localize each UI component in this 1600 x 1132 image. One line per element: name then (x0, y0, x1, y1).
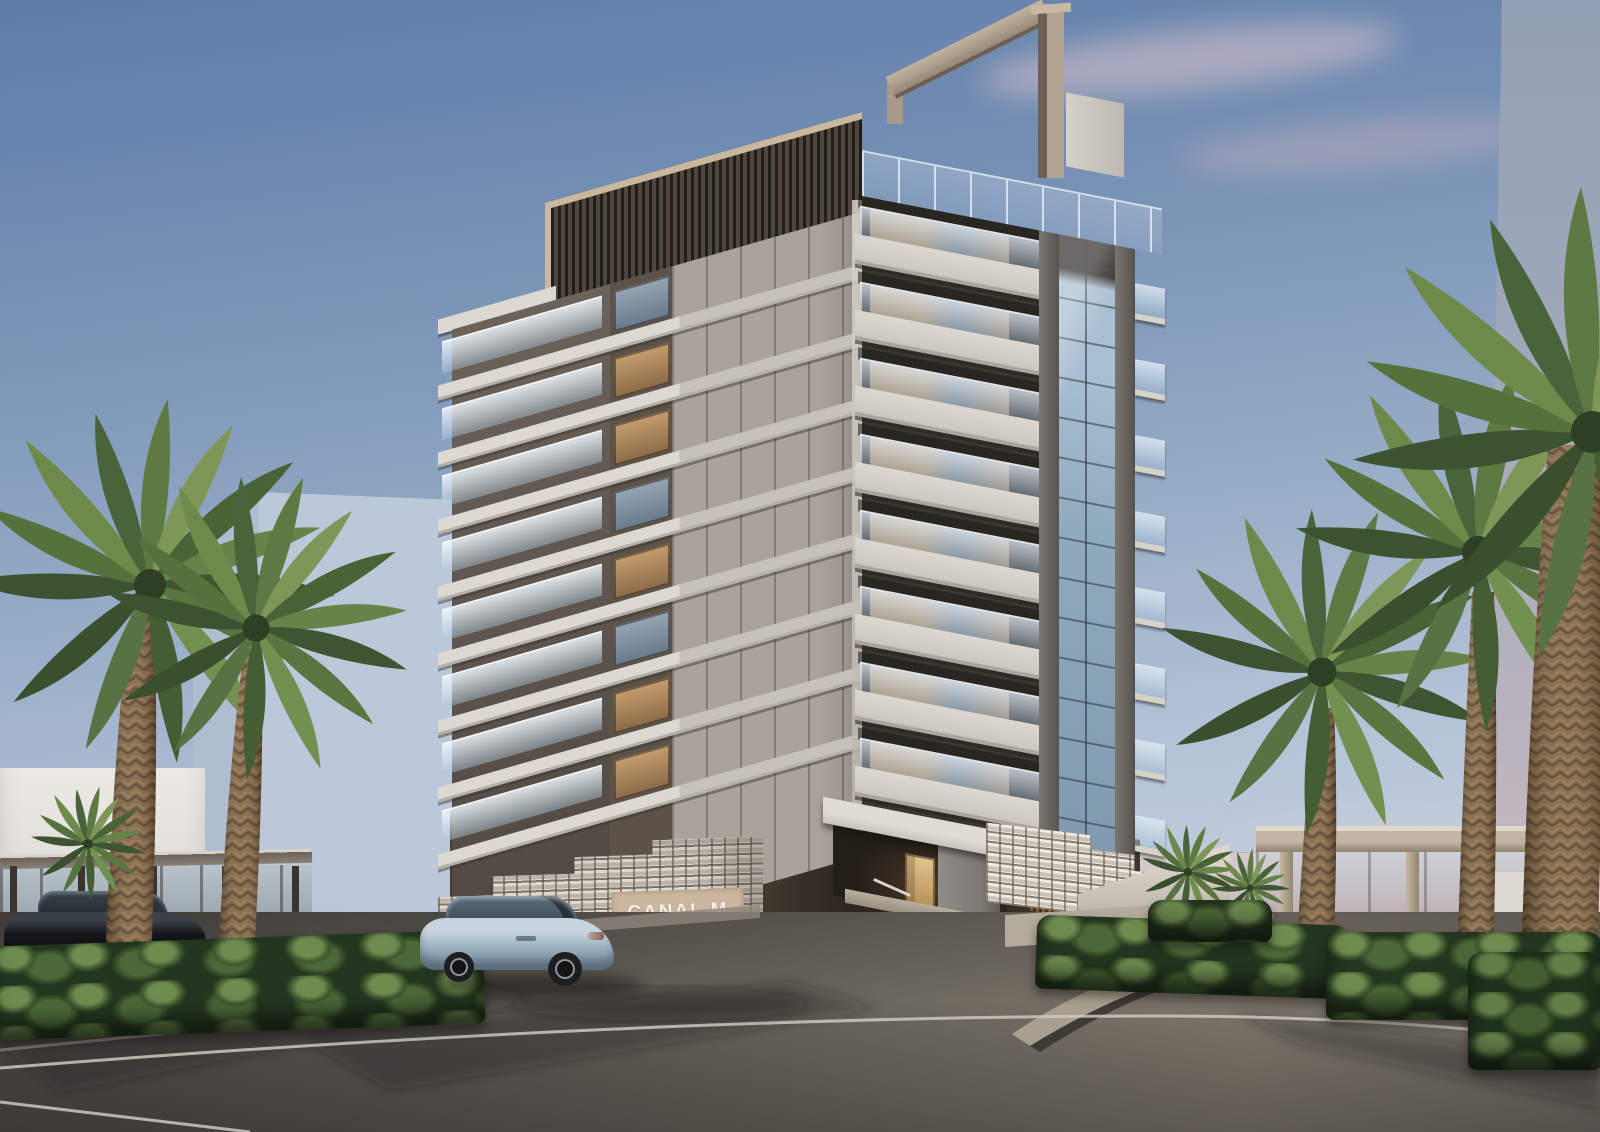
hedge-entrance (1148, 900, 1272, 942)
side-balcony (1135, 435, 1165, 477)
side-balcony (1135, 359, 1165, 401)
side-balcony (1135, 815, 1165, 857)
hedge-row-left (0, 929, 485, 1040)
side-balcony (1135, 587, 1165, 629)
side-balcony (1135, 511, 1165, 553)
side-balcony (1135, 283, 1165, 325)
hedge-foreground-right (1468, 952, 1600, 1070)
rendering-canvas: CANAL M (0, 0, 1600, 1132)
tower-southeast-face (862, 196, 1162, 918)
side-balcony (1135, 663, 1165, 705)
portal-frame-post (1038, 8, 1064, 178)
side-balcony (1135, 739, 1165, 781)
roof-bulkhead (1066, 92, 1124, 177)
concrete-pier (1039, 230, 1059, 898)
pavilion-roof (1256, 826, 1600, 852)
glass-curtain-wall (1059, 234, 1115, 909)
concrete-pier (1115, 245, 1135, 913)
